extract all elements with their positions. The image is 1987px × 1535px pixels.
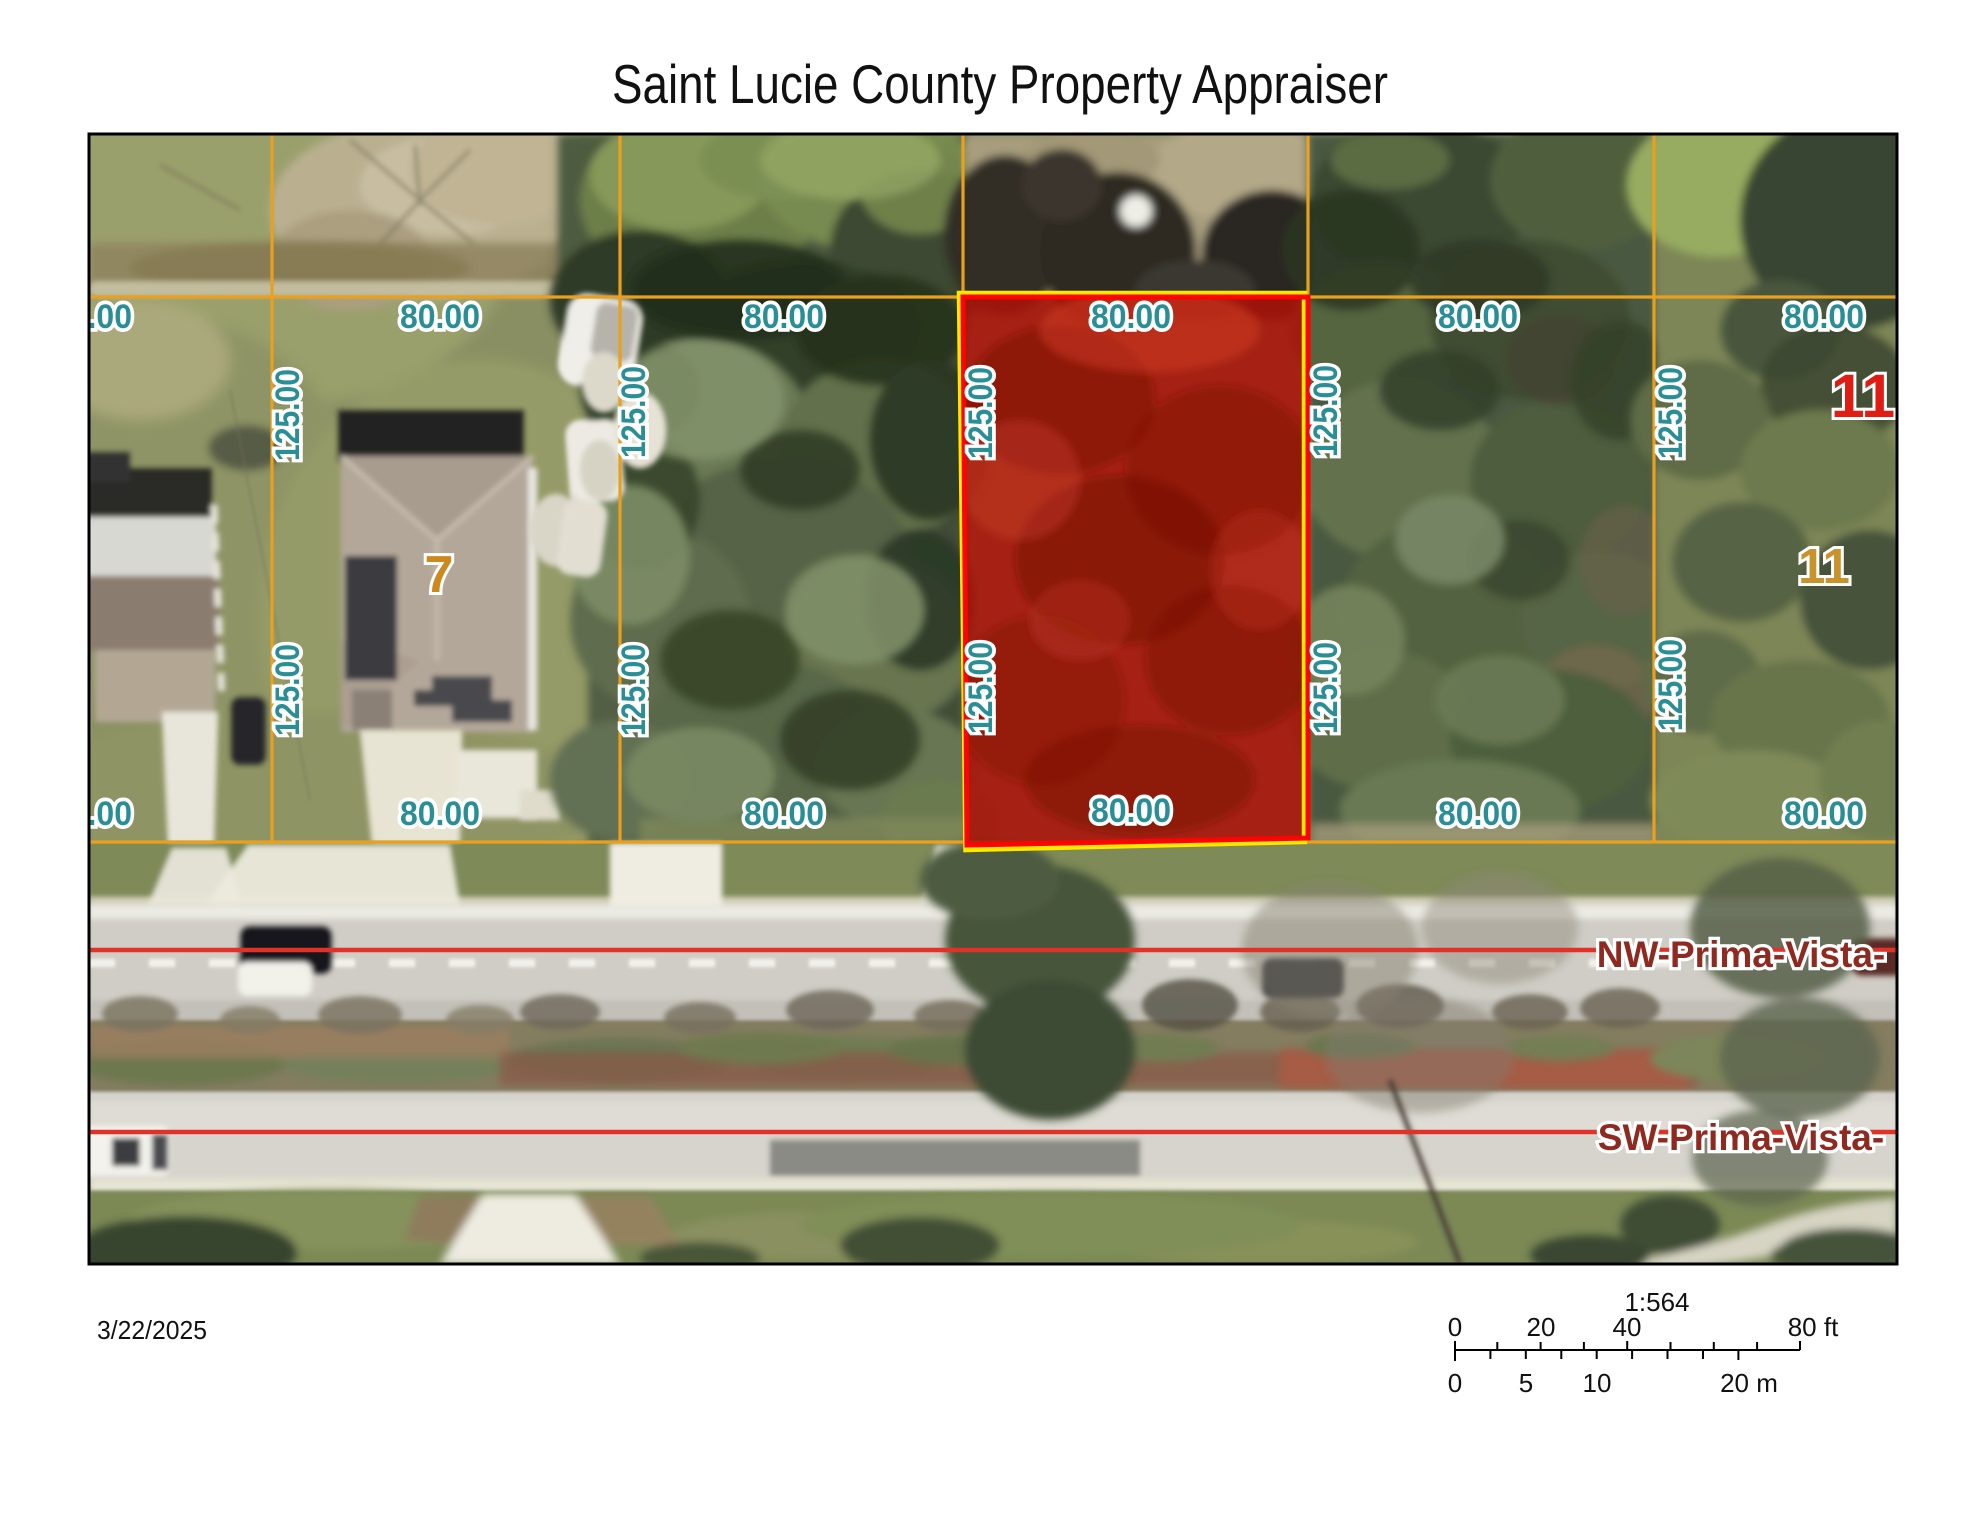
svg-text:80.00: 80.00 bbox=[1784, 795, 1864, 833]
svg-text:SW-Prima-Vista-: SW-Prima-Vista- bbox=[1598, 1117, 1884, 1158]
svg-text:125.00: 125.00 bbox=[1652, 639, 1690, 731]
svg-text:80.00: 80.00 bbox=[1091, 298, 1171, 336]
svg-text:10: 10 bbox=[1583, 1368, 1612, 1398]
svg-text:Saint Lucie County Property Ap: Saint Lucie County Property Appraiser bbox=[612, 53, 1388, 115]
svg-text:80.00: 80.00 bbox=[1438, 298, 1518, 336]
svg-text:125.00: 125.00 bbox=[962, 367, 1000, 459]
svg-text:80.00: 80.00 bbox=[1784, 298, 1864, 336]
svg-text:80.00: 80.00 bbox=[1438, 795, 1518, 833]
svg-text:5: 5 bbox=[1519, 1368, 1533, 1398]
svg-text:80.00: 80.00 bbox=[52, 298, 132, 336]
svg-text:125.00: 125.00 bbox=[1652, 367, 1690, 459]
svg-text:125.00: 125.00 bbox=[1307, 365, 1345, 457]
svg-text:80.00: 80.00 bbox=[744, 298, 824, 336]
svg-text:80.00: 80.00 bbox=[744, 795, 824, 833]
svg-text:125.00: 125.00 bbox=[269, 644, 307, 736]
svg-text:40: 40 bbox=[1613, 1312, 1642, 1342]
svg-text:125.00: 125.00 bbox=[962, 642, 1000, 734]
svg-text:11: 11 bbox=[1831, 362, 1896, 430]
svg-text:80.00: 80.00 bbox=[52, 795, 132, 833]
svg-text:0: 0 bbox=[1448, 1368, 1462, 1398]
svg-text:125.00: 125.00 bbox=[615, 644, 653, 736]
svg-text:3/22/2025: 3/22/2025 bbox=[97, 1315, 207, 1345]
svg-text:NW-Prima-Vista-: NW-Prima-Vista- bbox=[1597, 934, 1885, 975]
svg-text:20: 20 bbox=[1527, 1312, 1556, 1342]
svg-text:0: 0 bbox=[1448, 1312, 1462, 1342]
svg-text:11: 11 bbox=[1798, 540, 1850, 594]
svg-text:7: 7 bbox=[425, 546, 454, 604]
svg-text:20 m: 20 m bbox=[1720, 1368, 1778, 1398]
svg-text:125.00: 125.00 bbox=[1307, 642, 1345, 734]
svg-text:80 ft: 80 ft bbox=[1788, 1312, 1839, 1342]
svg-text:80.00: 80.00 bbox=[400, 298, 480, 336]
svg-text:125.00: 125.00 bbox=[269, 369, 307, 461]
svg-text:80.00: 80.00 bbox=[1091, 792, 1171, 830]
svg-text:80.00: 80.00 bbox=[400, 795, 480, 833]
svg-text:125.00: 125.00 bbox=[615, 366, 653, 458]
